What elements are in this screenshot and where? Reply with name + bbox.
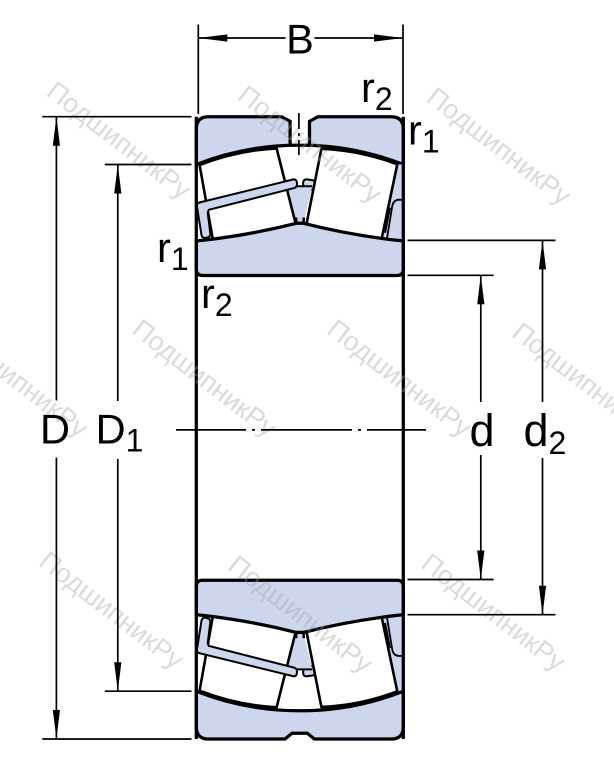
svg-text:B: B <box>286 16 314 63</box>
svg-text:D: D <box>40 406 70 453</box>
svg-text:d: d <box>469 405 494 456</box>
